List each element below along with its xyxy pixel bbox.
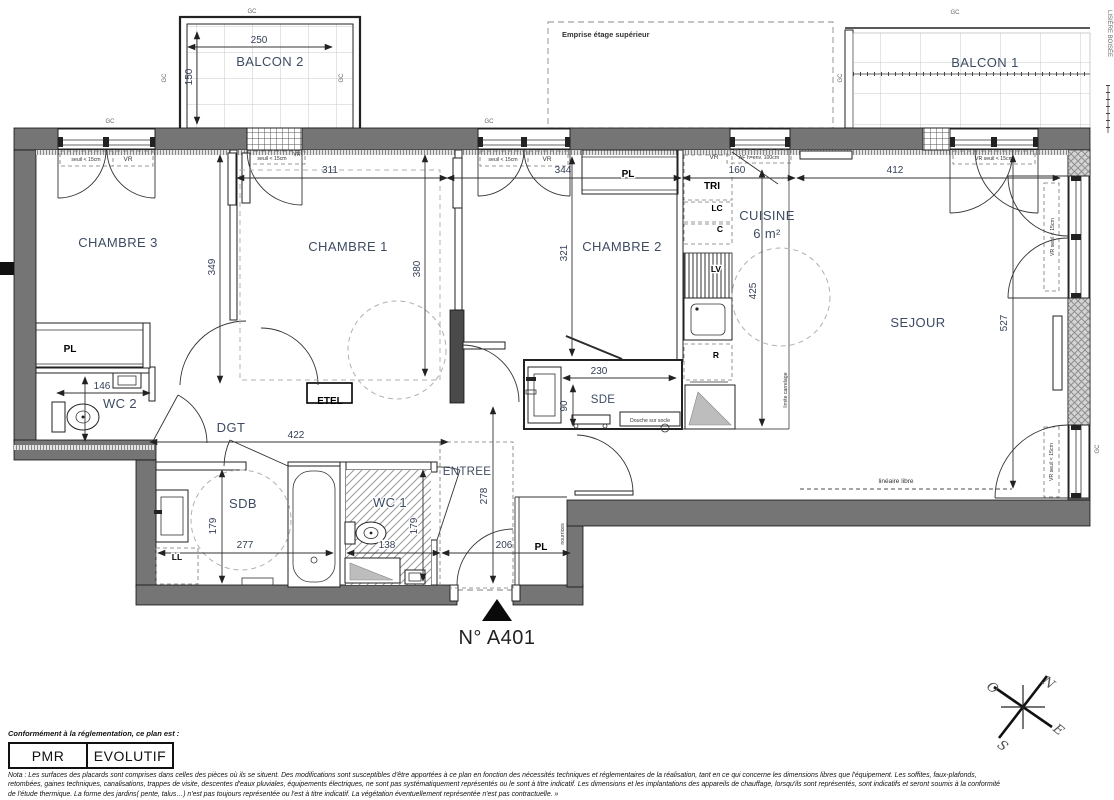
vr-seuil-right-lower-label: VR seuil < 15cm (1049, 443, 1055, 481)
entrance-marker: N° A401 (458, 599, 535, 649)
dim-277: 277 (237, 540, 254, 551)
vr-label: VR (123, 156, 132, 163)
dim-425: 425 (748, 282, 759, 299)
chambre-3-label: CHAMBRE 3 (78, 235, 157, 250)
chambre-1-label: CHAMBRE 1 (308, 239, 387, 254)
vr-seuil-sejour-label: VR seuil < 15cm (975, 156, 1013, 162)
gc-label: GC (1095, 444, 1101, 454)
sdb-label: SDB (229, 496, 257, 511)
seuil-label: seuil < 15cm (257, 156, 286, 162)
plan-number: N° A401 (458, 627, 535, 649)
dim-90: 90 (559, 400, 570, 412)
gc-label: GC (162, 73, 168, 83)
wc2-label: WC 2 (103, 396, 137, 411)
evolutif-badge: EVOLUTIF (88, 744, 172, 767)
gc-label: GC (485, 119, 495, 125)
balcony-1 (845, 28, 1090, 128)
ll-label: LL (172, 552, 182, 562)
dim-179-wc1: 179 (409, 517, 420, 534)
nota-line-1: Nota : Les surfaces des placards sont co… (8, 771, 1110, 780)
dim-321: 321 (559, 244, 570, 261)
dim-344: 344 (555, 165, 572, 176)
c-label: C (717, 224, 723, 234)
r-label: R (713, 350, 719, 360)
dim-412: 412 (887, 165, 904, 176)
douche-sur-socle-label: Douche sur socle (630, 418, 670, 424)
dim-349: 349 (207, 258, 218, 275)
lisiere-boisee-label: LISIÈRE BOISÉE (1106, 10, 1113, 57)
sejour-label: SEJOUR (890, 315, 945, 330)
vr-label: VR (293, 152, 300, 158)
dim-138: 138 (379, 540, 396, 551)
dim-179-sdb: 179 (208, 517, 219, 534)
conformity-label: Conformément à la réglementation, ce pla… (8, 729, 179, 738)
pl-chambre2-label: PL (622, 169, 635, 180)
etel-label: ETEL (317, 396, 343, 407)
balcony-2-label: BALCON 2 (236, 54, 304, 69)
dim-380: 380 (412, 260, 423, 277)
dim-146: 146 (94, 381, 111, 392)
dim-250: 250 (251, 35, 268, 46)
dgt-label: DGT (217, 420, 246, 435)
compass-e: E (1049, 721, 1067, 740)
certification-boxes: PMR EVOLUTIF (8, 742, 174, 769)
compass-rose: N E S O (983, 673, 1067, 755)
chambre-2-label: CHAMBRE 2 (582, 239, 661, 254)
seuil-label: seuil < 15cm (71, 157, 100, 163)
wc1-label: WC 1 (373, 495, 407, 510)
gc-label: GC (248, 9, 258, 15)
tri-label: TRI (704, 181, 720, 192)
dim-206: 206 (496, 540, 513, 551)
gc-label: GC (951, 10, 961, 16)
gc-label: GC (339, 73, 345, 83)
compass-n: N (1038, 673, 1057, 693)
lv-label: LV (711, 264, 722, 274)
dim-527: 527 (999, 314, 1010, 331)
dim-278: 278 (479, 487, 490, 504)
dim-311: 311 (322, 165, 338, 176)
emprise-label: Emprise étage supérieur (562, 30, 650, 39)
pl-chambre3-label: PL (64, 344, 77, 355)
gc-label: GC (838, 73, 844, 83)
nota-line-3: de l'étude thermique. La forme des jardi… (8, 790, 1110, 799)
sde-label: SDE (591, 394, 616, 406)
nourrices-label: nourrices (560, 523, 566, 545)
pmr-badge: PMR (10, 744, 88, 767)
nota-text: Nota : Les surfaces des placards sont co… (8, 771, 1110, 799)
nota-line-2: retombées, gaines techniques, canalisati… (8, 780, 1110, 789)
dim-150: 150 (184, 68, 195, 85)
compass-s: S (994, 738, 1010, 755)
cuisine-area-label: 6 m² (753, 226, 781, 241)
dim-422: 422 (288, 430, 305, 441)
lc-label: LC (711, 203, 722, 213)
gc-label: GC (106, 119, 116, 125)
vr-label: VR (709, 154, 718, 161)
balcony-2 (180, 17, 360, 131)
balcony-1-label: BALCON 1 (951, 55, 1019, 70)
dim-230: 230 (591, 366, 608, 377)
cuisine-label: CUISINE (739, 208, 795, 223)
entree-label: ENTREE (443, 466, 491, 478)
seuil-label: seuil < 15cm (488, 157, 517, 163)
af-window-label: AF h=env. 100cm (739, 155, 779, 161)
limite-carrelage-label: limite carrelage (783, 372, 789, 407)
vr-label: VR (542, 156, 551, 163)
floor-plan: BALCON 2 BALCON 1 CHAMBRE 3 CHAMBRE 1 CH… (0, 0, 1114, 766)
vr-seuil-right-upper-label: VR seuil < 15cm (1050, 218, 1056, 256)
pl-entree-label: PL (535, 542, 548, 553)
lineaire-libre-label: linéaire libre (878, 478, 913, 485)
compass-o: O (983, 679, 1001, 698)
dim-160: 160 (729, 165, 746, 176)
